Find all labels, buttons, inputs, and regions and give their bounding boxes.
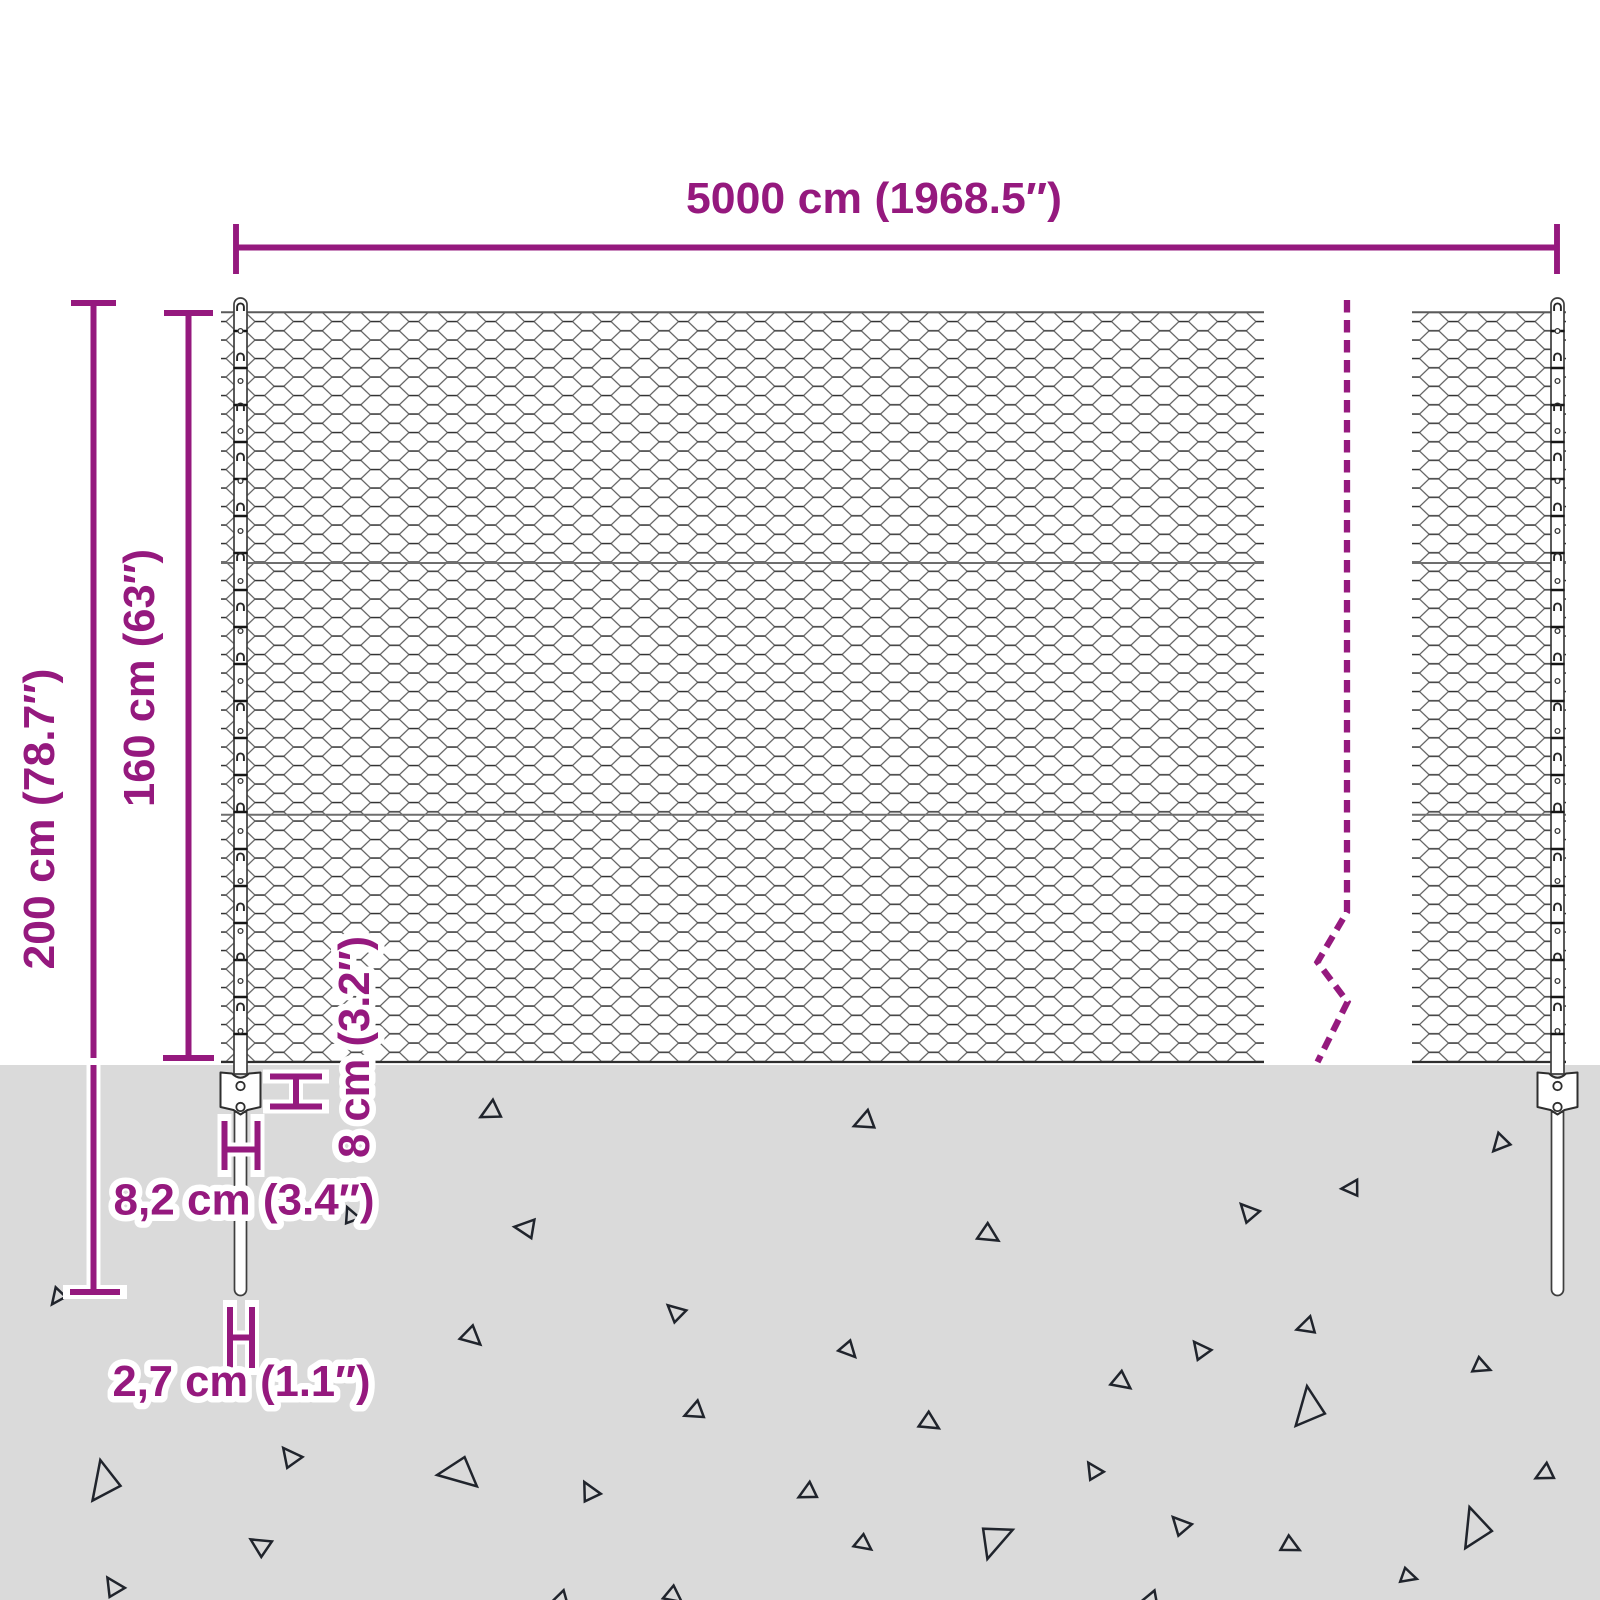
svg-text:5000 cm (1968.5″): 5000 cm (1968.5″): [686, 174, 1062, 223]
svg-text:200 cm (78.7″): 200 cm (78.7″): [15, 669, 64, 970]
svg-text:160 cm (63″): 160 cm (63″): [115, 549, 164, 807]
svg-text:2,7 cm (1.1″): 2,7 cm (1.1″): [113, 1357, 371, 1406]
svg-text:8 cm (3.2″): 8 cm (3.2″): [330, 936, 379, 1158]
svg-text:8,2 cm (3.4″): 8,2 cm (3.4″): [114, 1176, 375, 1225]
